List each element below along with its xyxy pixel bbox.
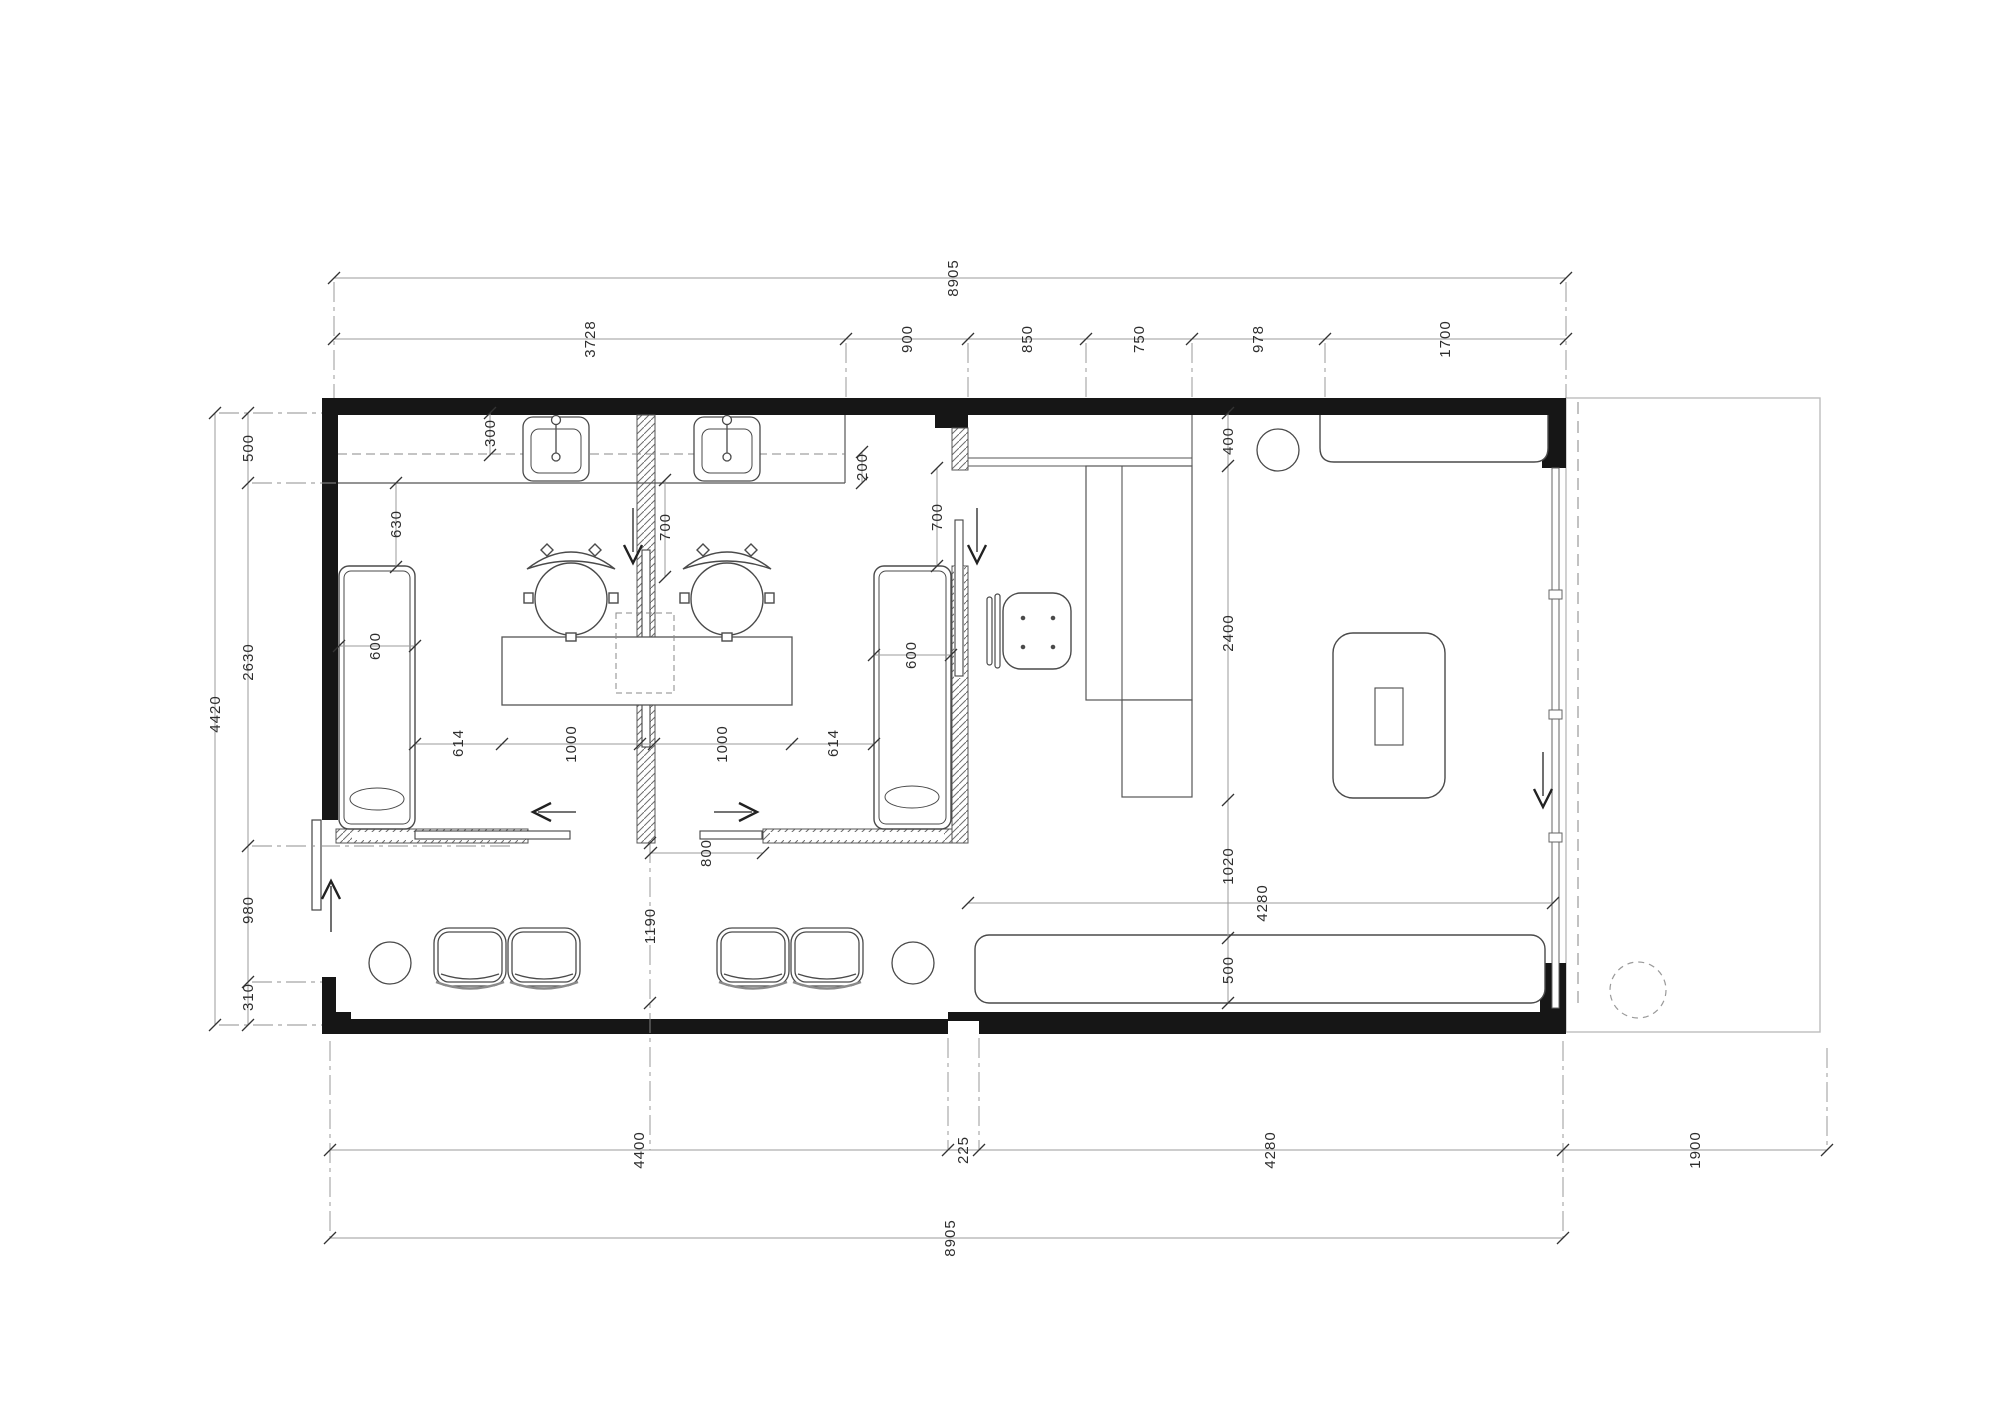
table-inset (1375, 688, 1403, 745)
dim-label: 850 (1019, 325, 1036, 353)
dim-label: 8905 (945, 259, 962, 296)
dim-label: 3728 (582, 320, 599, 357)
operator-chair-left (524, 544, 618, 641)
exterior-dashed-circle (1610, 962, 1666, 1018)
dim-label: 1700 (1437, 320, 1454, 357)
dim-label: 700 (929, 503, 946, 531)
dim-label: 750 (1131, 325, 1148, 353)
dim-label: 980 (240, 896, 257, 924)
stool (1257, 429, 1299, 471)
top-wall (322, 398, 1566, 415)
facade-arrow-down-icon (1534, 752, 1552, 807)
wall-bench-bottom (975, 935, 1545, 1003)
dim-label: 4280 (1254, 884, 1271, 921)
work-desk (502, 637, 792, 705)
dim-label: 2400 (1220, 614, 1237, 651)
office-chair (987, 593, 1071, 669)
exterior-outline (1566, 398, 1820, 1032)
sliding-door-panel-left (415, 831, 570, 839)
mullion (1549, 590, 1562, 599)
dim-label: 600 (903, 641, 920, 669)
mullion (1549, 833, 1562, 842)
reception-desk-return (1086, 466, 1192, 700)
dim-label: 500 (1220, 956, 1237, 984)
dim-label: 978 (1250, 325, 1267, 353)
dim-label: 614 (450, 729, 467, 757)
dim-label: 900 (899, 325, 916, 353)
dim-label: 1000 (714, 725, 731, 762)
dim-label: 630 (388, 510, 405, 538)
dim-label: 1900 (1687, 1131, 1704, 1168)
operator-chair-right (680, 544, 774, 641)
right-partition-upper (952, 428, 968, 470)
dim-label: 2630 (240, 643, 257, 680)
dim-label: 1020 (1220, 847, 1237, 884)
dim-label: 225 (955, 1136, 972, 1164)
partition-walls (336, 415, 968, 843)
waiting-chair (508, 928, 580, 989)
floor-plan-drawing: 8905 3728 900 850 750 978 1700 4420 500 … (0, 0, 2000, 1413)
side-table (369, 942, 411, 984)
pillow-left (350, 788, 404, 810)
dim-label: 300 (482, 419, 499, 447)
side-table (892, 942, 934, 984)
dim-label: 600 (367, 632, 384, 660)
floor-plan-sheet: 8905 3728 900 850 750 978 1700 4420 500 … (0, 0, 2000, 1413)
dim-label: 310 (240, 983, 257, 1011)
dim-label: 400 (1220, 427, 1237, 455)
dim-label: 800 (698, 839, 715, 867)
pillow-right (885, 786, 939, 808)
dim-label: 1000 (563, 725, 580, 762)
entry-arrow-up-icon (322, 881, 340, 932)
bottom-wall-right (979, 1012, 1540, 1034)
window-glazing (1552, 468, 1559, 1008)
sliding-door-panel-right (700, 831, 762, 839)
bottom-wall-step (948, 1012, 979, 1021)
top-wall-stub (935, 415, 968, 428)
entry-door-leaf (312, 820, 321, 910)
dim-label: 500 (240, 434, 257, 462)
sink-basin-right (694, 416, 760, 482)
dim-label: 614 (825, 729, 842, 757)
sliding-door-panel-room2 (955, 520, 963, 676)
mullion (1549, 710, 1562, 719)
sink-basin-left (523, 416, 589, 482)
slide-arrow-right-icon (714, 803, 757, 821)
waiting-chair (717, 928, 789, 989)
reception-desk-lower (1122, 700, 1192, 797)
wall-bench-top (1320, 415, 1548, 462)
dim-label: 700 (657, 513, 674, 541)
dim-label: 8905 (942, 1219, 959, 1256)
room2-door-arrow-down-icon (968, 508, 986, 563)
left-wall (322, 398, 338, 820)
dim-label: 4420 (207, 695, 224, 732)
glazed-facade (1549, 468, 1562, 1008)
slide-arrow-left-icon (533, 803, 576, 821)
bottom-wall-left (351, 1019, 948, 1034)
dim-label: 200 (854, 453, 871, 481)
dim-label: 4280 (1262, 1131, 1279, 1168)
witness-lines (219, 282, 1827, 1238)
left-corner-step (336, 1012, 351, 1034)
waiting-chair (791, 928, 863, 989)
left-corner-pier (322, 977, 336, 1034)
dim-label: 4400 (631, 1131, 648, 1168)
waiting-chair (434, 928, 506, 989)
dim-label: 1190 (642, 908, 659, 944)
exterior-zone (1566, 398, 1820, 1032)
